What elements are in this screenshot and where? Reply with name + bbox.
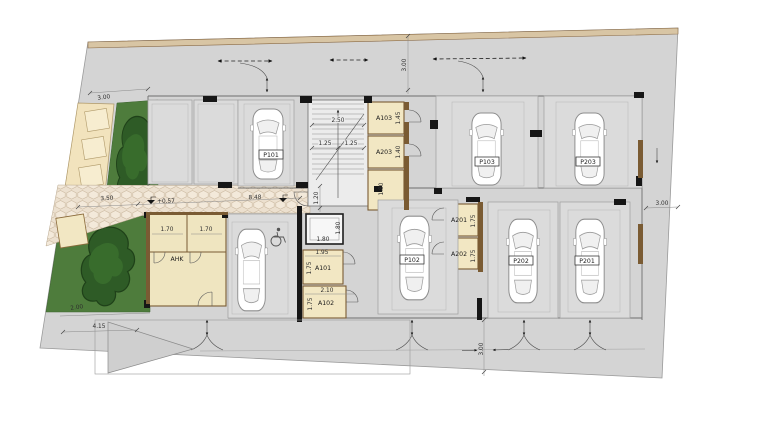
dim-a103-depth: 1.45 [396,111,402,124]
dim-plot-top-center: 3.00 [402,58,408,71]
parking-label-p101: P101 [263,152,279,159]
room-label-a203: A203 [376,149,392,156]
dim-a202-depth: 1.75 [471,249,477,262]
dim-ahk-left: 1.70 [161,227,174,233]
parking-bay-empty [194,100,238,184]
room-label-a102: A102 [318,300,334,307]
dim-walkway-left: 3.50 [100,196,113,202]
car-p103 [469,113,503,185]
dim-a101-depth: 1.75 [307,261,313,274]
room-label-a103: A103 [376,115,392,122]
parking-label-p201: P201 [579,258,595,265]
room-label-a202: A202 [451,251,467,258]
planter-box [79,164,104,187]
parking-bay-empty [148,100,192,184]
car-p101 [250,109,285,179]
dim-walkway-right: 8.48 [248,195,261,201]
dim-store-depth: 1.80 [379,182,385,195]
room-label-ahk: AHK [171,256,185,263]
dim-stair-flight-right: 1.25 [345,141,358,147]
dim-plot-right: 3.00 [656,201,669,207]
dim-a101-width: 1.95 [316,250,329,256]
dim-stair-flight-left: 1.25 [319,141,332,147]
car-p203 [572,113,606,185]
planter-box [85,108,110,131]
car-accessible [235,229,267,311]
dim-stair-hall: 1.20 [314,191,320,204]
dim-a102-width: 2.10 [321,288,334,294]
room-label-a201: A201 [451,217,467,224]
planter-box [82,136,107,159]
dim-plot-bottom-center: 3.00 [479,342,485,355]
dim-a203-depth: 1.40 [396,145,402,158]
dim-ahk-right: 1.70 [200,227,213,233]
dim-walkway-level: +0.57 [157,199,175,205]
dim-lift-width: 1.80 [317,237,330,243]
parking-label-p202: P202 [513,258,529,265]
dim-a102-depth: 1.75 [308,297,314,310]
dim-ramp-length: 4.15 [93,324,106,330]
parking-label-p203: P203 [580,159,596,166]
parking-label-p102: P102 [404,257,420,264]
dim-lift-depth: 1.80 [336,221,342,234]
stair-core [308,100,368,206]
parking-label-p103: P103 [479,159,495,166]
dim-a201-depth: 1.75 [471,214,477,227]
floor-plan-canvas: P101 P103 P203 P102 P202 P201 A103 A203 … [0,0,768,432]
gate-box [56,214,88,248]
dim-stair-total: 2.50 [332,118,345,124]
room-label-a101: A101 [315,265,331,272]
